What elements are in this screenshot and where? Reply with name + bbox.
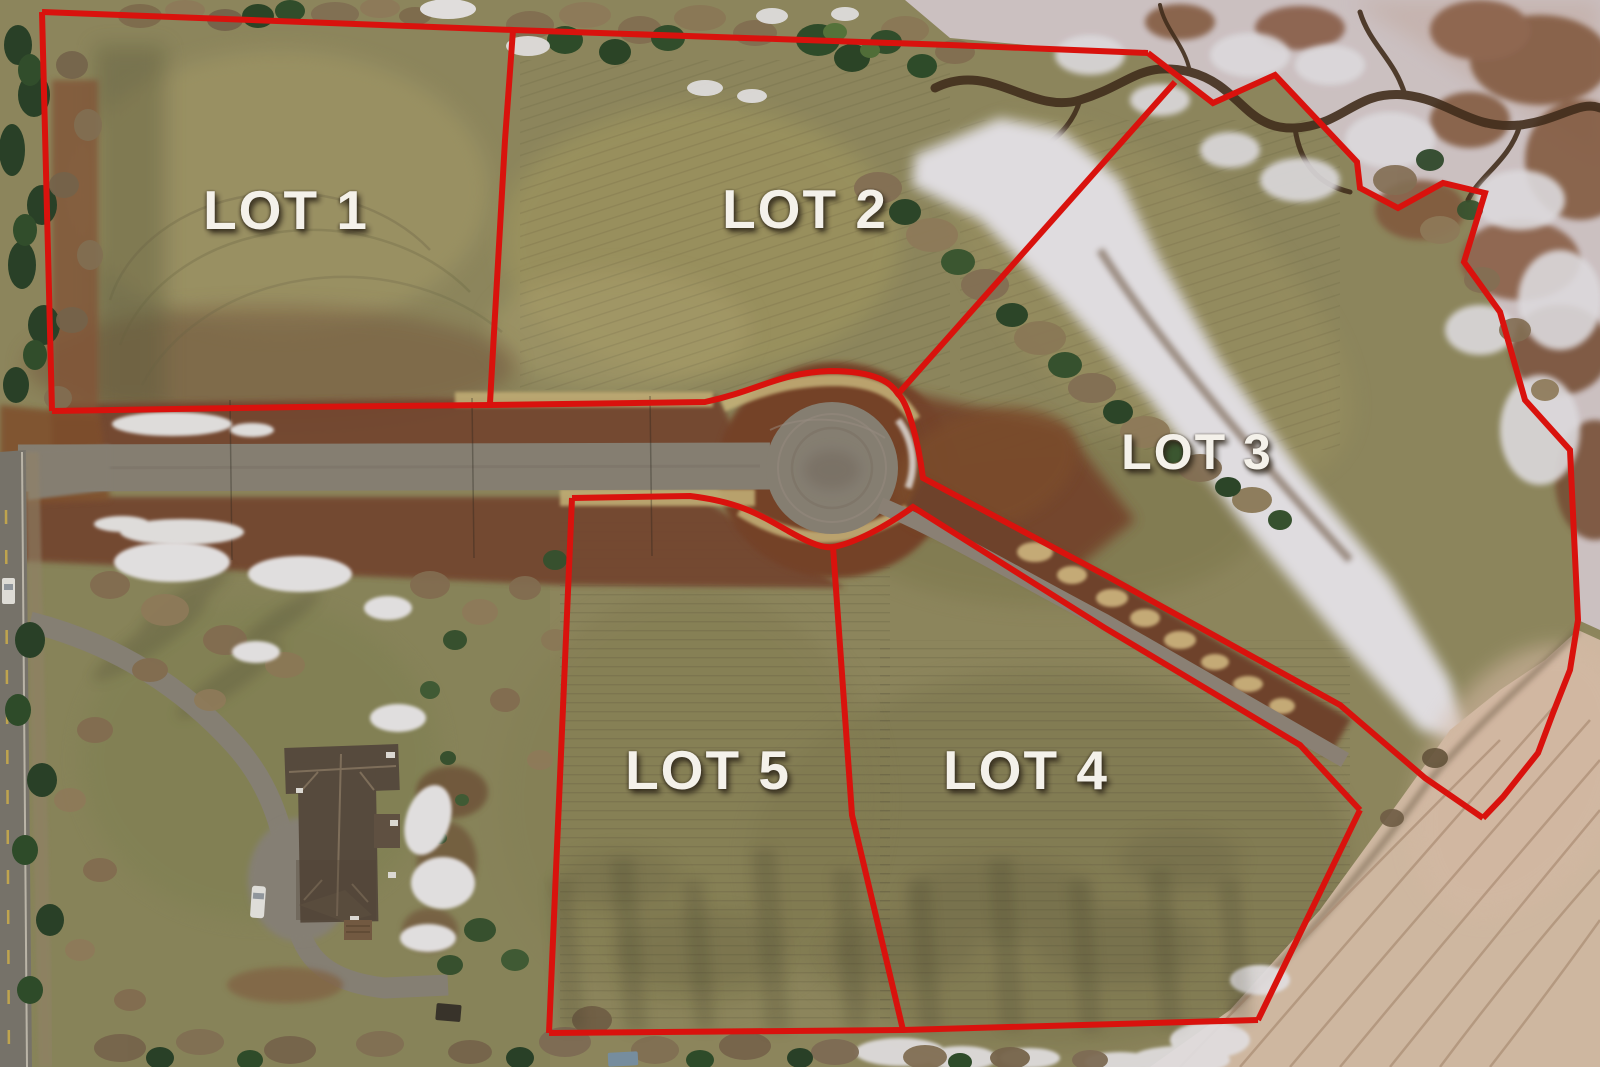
photo-grain-overlay — [0, 0, 1600, 1067]
lot-1-label: LOT 1 — [203, 178, 369, 242]
lot-2-label: LOT 2 — [722, 177, 888, 241]
lot-4-label: LOT 4 — [943, 738, 1109, 802]
aerial-lot-map: LOT 1 LOT 2 LOT 3 LOT 4 LOT 5 — [0, 0, 1600, 1067]
lot-3-label: LOT 3 — [1121, 423, 1273, 481]
lot-5-label: LOT 5 — [625, 738, 791, 802]
aerial-photo — [0, 0, 1600, 1067]
